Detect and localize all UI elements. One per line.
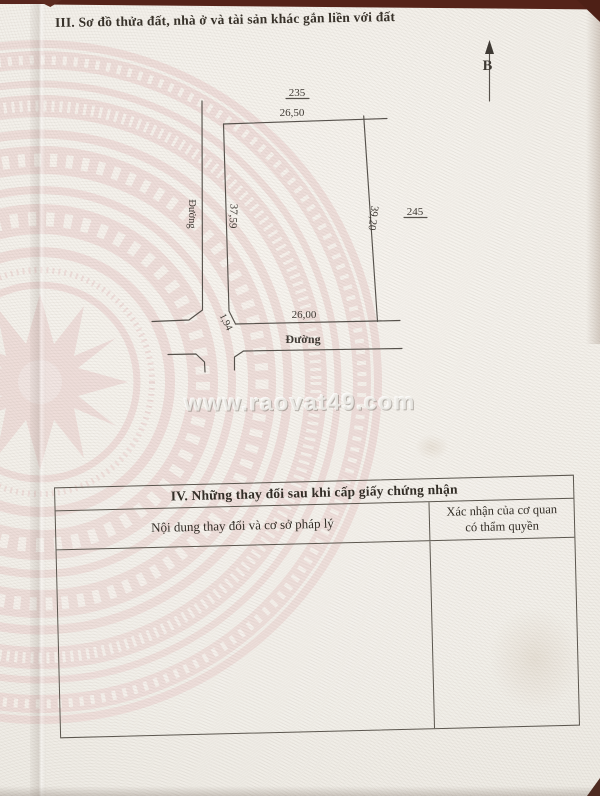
road-left-label: Đường — [186, 199, 197, 229]
road-bottom-label: Đường — [285, 332, 320, 346]
plot-left-edge — [224, 124, 236, 324]
north-arrow-icon — [485, 40, 494, 101]
changes-table-body-row — [57, 538, 579, 738]
photo-frame: III. Sơ đồ thửa đất, nhà ở và tài sản kh… — [0, 0, 600, 796]
col-header-confirmation-line2: có thẩm quyền — [465, 519, 539, 536]
plot-right-edge — [364, 116, 378, 322]
certificate-page: III. Sơ đồ thửa đất, nhà ở và tài sản kh… — [0, 4, 600, 796]
changes-table: IV. Những thay đổi sau khi cấp giấy chứn… — [54, 475, 580, 739]
adjacent-parcel-right: 245 — [407, 206, 424, 218]
compass-label: B — [483, 58, 493, 74]
plot-top-edge — [224, 119, 388, 125]
road-left-line — [152, 101, 203, 322]
dim-corner: 1,94 — [217, 312, 235, 333]
col-header-confirmation-line1: Xác nhận của cơ quan — [446, 502, 557, 520]
col-header-confirmation: Xác nhận của cơ quan có thẩm quyền — [429, 499, 574, 541]
cell-content-empty — [57, 541, 435, 737]
plot-bottom-edge — [236, 321, 401, 325]
section3-title: III. Sơ đồ thửa đất, nhà ở và tài sản kh… — [55, 8, 475, 31]
cell-confirmation-empty — [430, 538, 579, 728]
adjacent-parcel-top: 235 — [289, 87, 306, 99]
dim-left: 37,59 — [226, 203, 239, 229]
paper-edge-shadow — [0, 786, 600, 796]
dim-right: 39,20 — [365, 205, 380, 232]
paper-stain — [408, 429, 456, 465]
dim-top: 26,50 — [280, 107, 305, 119]
road-bottom-line — [235, 349, 403, 371]
dim-bottom: 26,00 — [292, 309, 317, 321]
watermark-text: www.raovat49.com — [0, 387, 600, 418]
intersection-sw-corner — [168, 354, 205, 372]
paper-edge-shadow — [586, 4, 600, 344]
